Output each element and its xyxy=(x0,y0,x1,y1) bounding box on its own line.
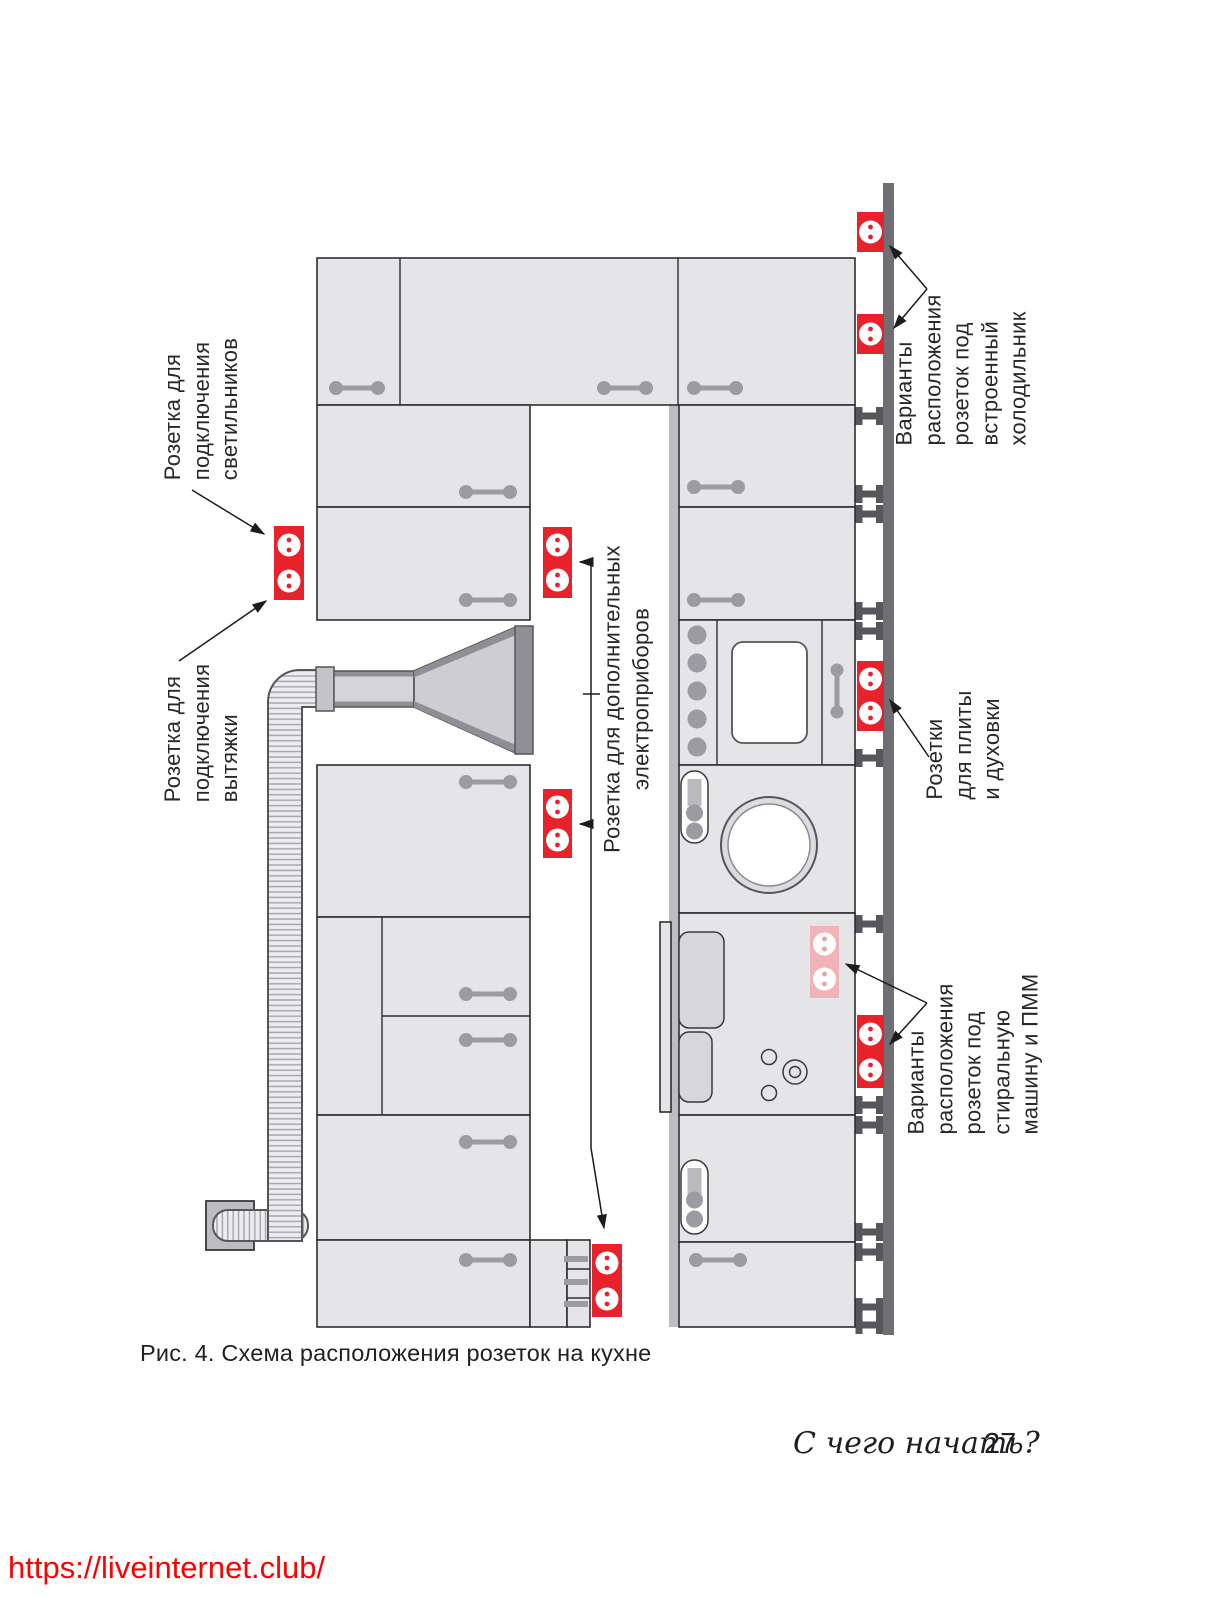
fridge-socket-2-icon xyxy=(857,314,884,354)
cabinet-feet xyxy=(856,407,884,1334)
extra-socket-3-icon xyxy=(592,1244,622,1317)
hood-funnel xyxy=(414,627,516,753)
drawer-stack xyxy=(564,1240,590,1327)
page-number: 27 xyxy=(984,1428,1016,1461)
washer-socket-main-icon xyxy=(857,1015,884,1088)
annotation-lights: Розетка для подключения светильников xyxy=(159,338,245,480)
fridge-socket-1-icon xyxy=(857,212,884,252)
washing-machine xyxy=(679,765,855,913)
washer-socket-faded-icon xyxy=(810,926,839,998)
extra-socket-2-icon xyxy=(543,789,572,858)
annotation-stove-oven: Розетки для плиты и духовки xyxy=(921,690,1007,799)
stove xyxy=(679,620,855,765)
right-cabinet-column xyxy=(660,405,855,1327)
oven-window xyxy=(732,642,807,743)
figure-caption: Рис. 4. Схема расположения розеток на ку… xyxy=(140,1340,651,1367)
wall-cabinets xyxy=(317,258,855,405)
annotation-extra-appliances: Розетка для дополнительных электроприбор… xyxy=(598,545,655,853)
annotation-washer-dishwasher: Варианты расположения розеток под стирал… xyxy=(903,896,1046,1135)
annotation-fridge: Варианты расположения розеток под встрое… xyxy=(891,195,1034,446)
corner-strip xyxy=(669,403,679,1327)
stove-socket-icon xyxy=(857,661,884,731)
book-page: Розетка для подключения светильников Роз… xyxy=(0,0,1213,1598)
annotation-hood: Розетка для подключения вытяжки xyxy=(159,664,245,803)
extra-socket-1-icon xyxy=(543,527,572,598)
watermark-url[interactable]: https://liveinternet.club/ xyxy=(8,1550,325,1586)
duct-vertical xyxy=(268,670,318,1241)
lights-socket-icon xyxy=(274,526,304,600)
